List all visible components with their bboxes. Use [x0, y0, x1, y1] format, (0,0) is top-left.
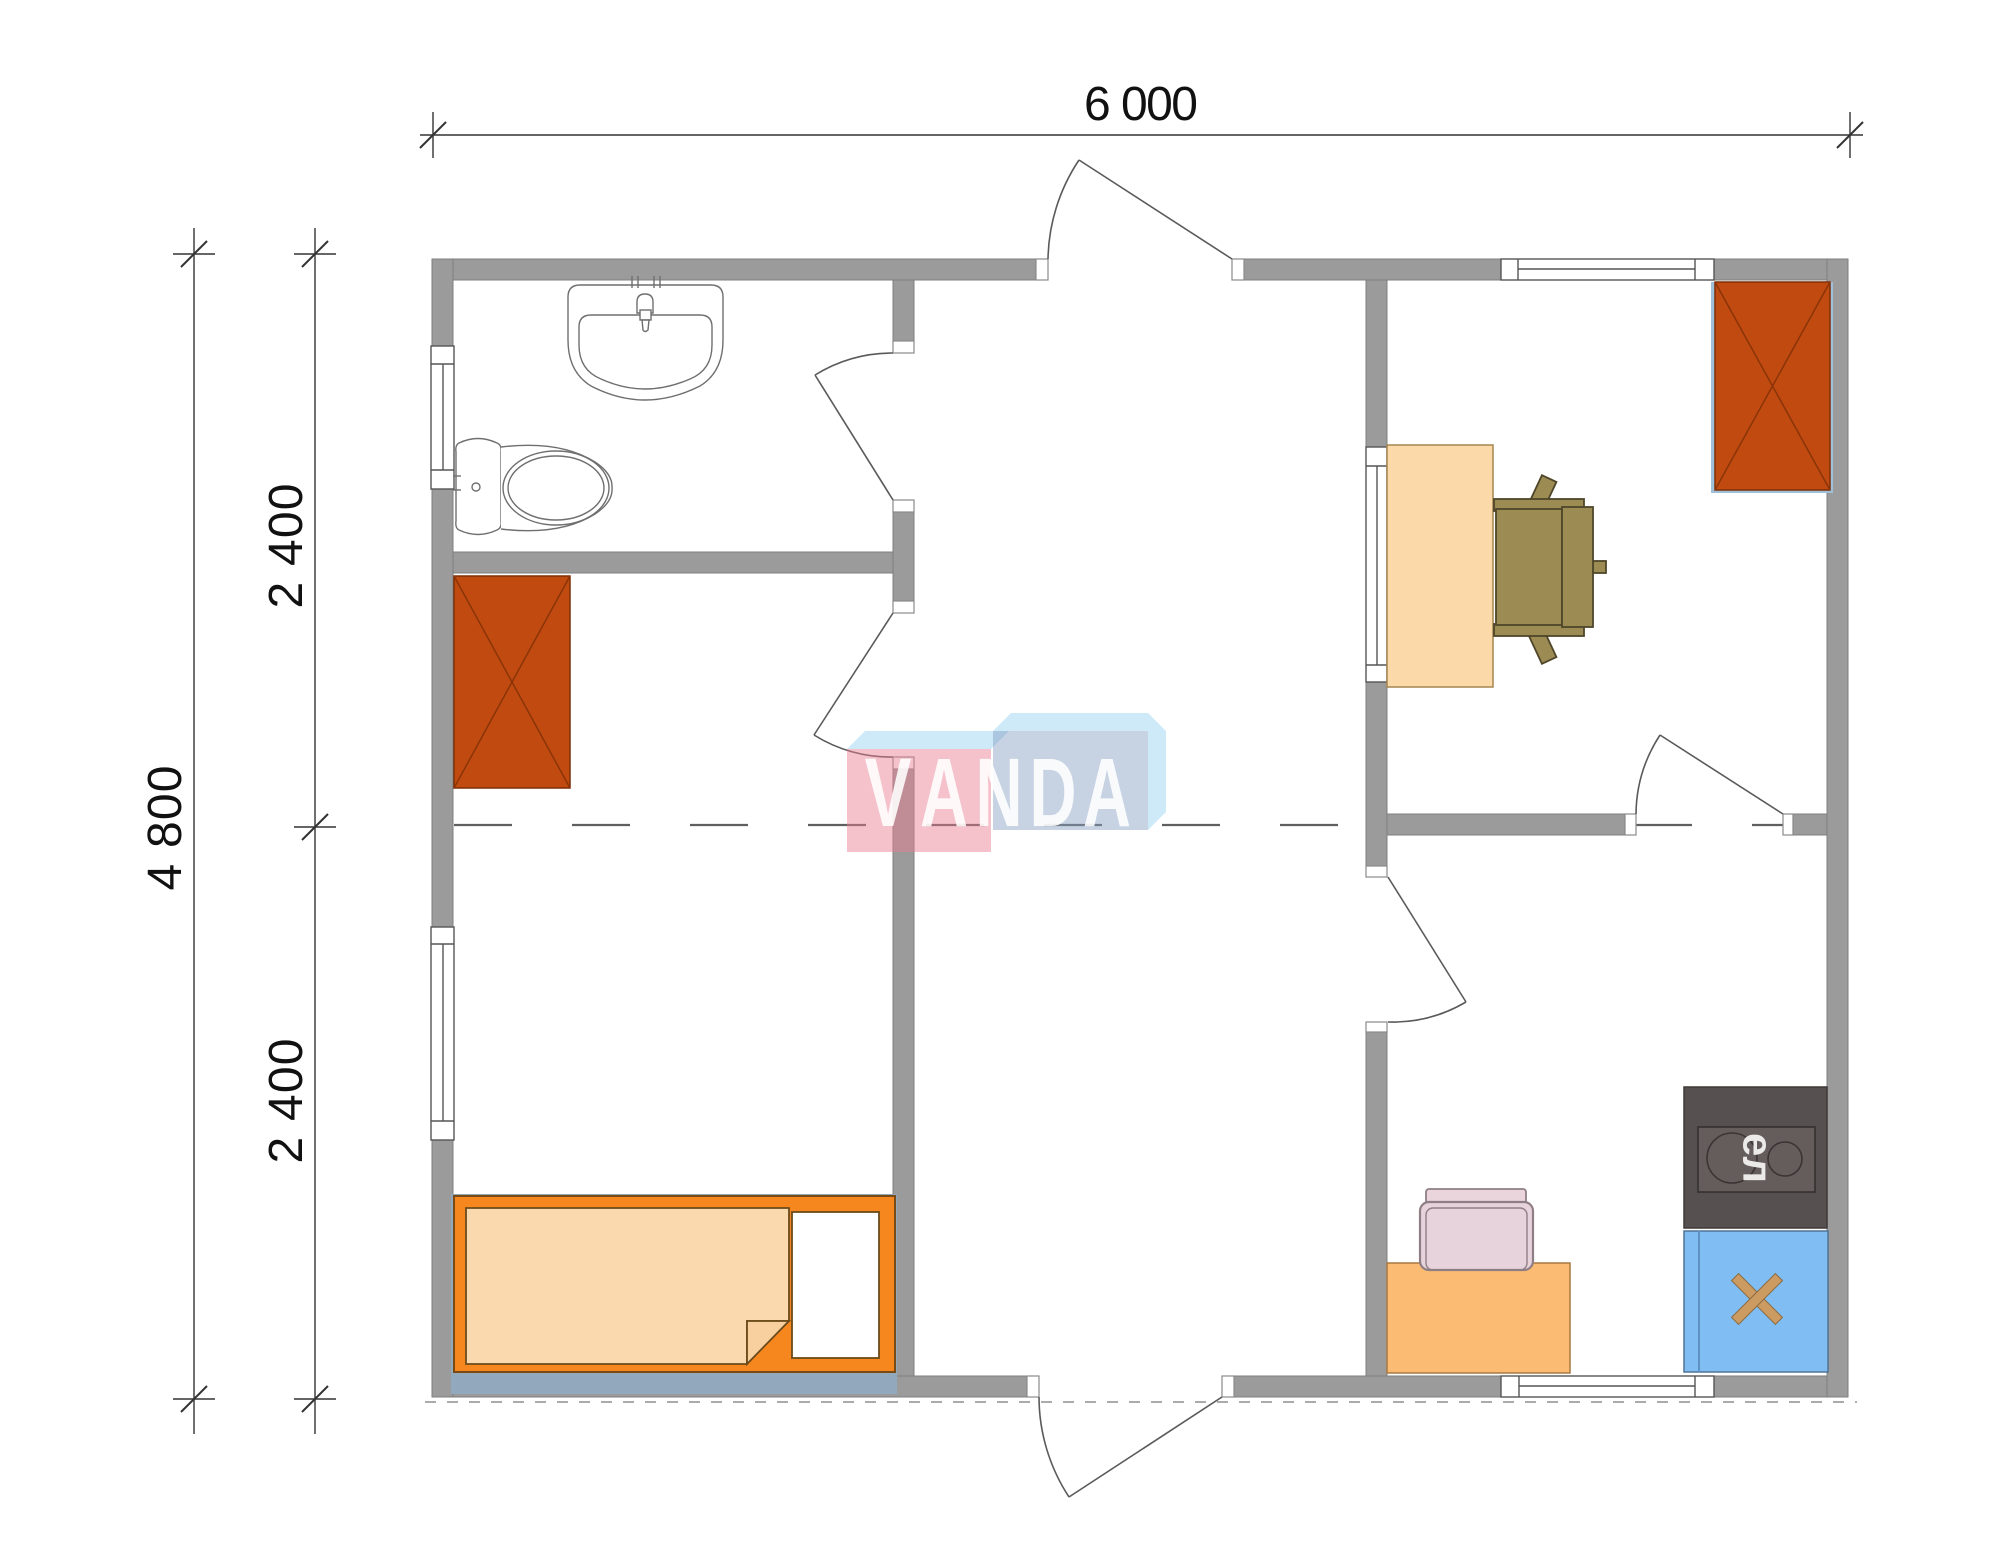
svg-text:6 000: 6 000 [1084, 78, 1198, 131]
svg-text:4 800: 4 800 [139, 766, 192, 891]
svg-text:A: A [920, 738, 968, 847]
svg-text:V: V [865, 738, 912, 847]
svg-text:A: A [1083, 738, 1131, 847]
svg-text:2 400: 2 400 [260, 1039, 313, 1164]
svg-text:2 400: 2 400 [260, 484, 313, 609]
svg-text:N: N [976, 738, 1023, 847]
svg-text:D: D [1030, 738, 1077, 847]
svg-text:ел: ел [1735, 1133, 1782, 1183]
